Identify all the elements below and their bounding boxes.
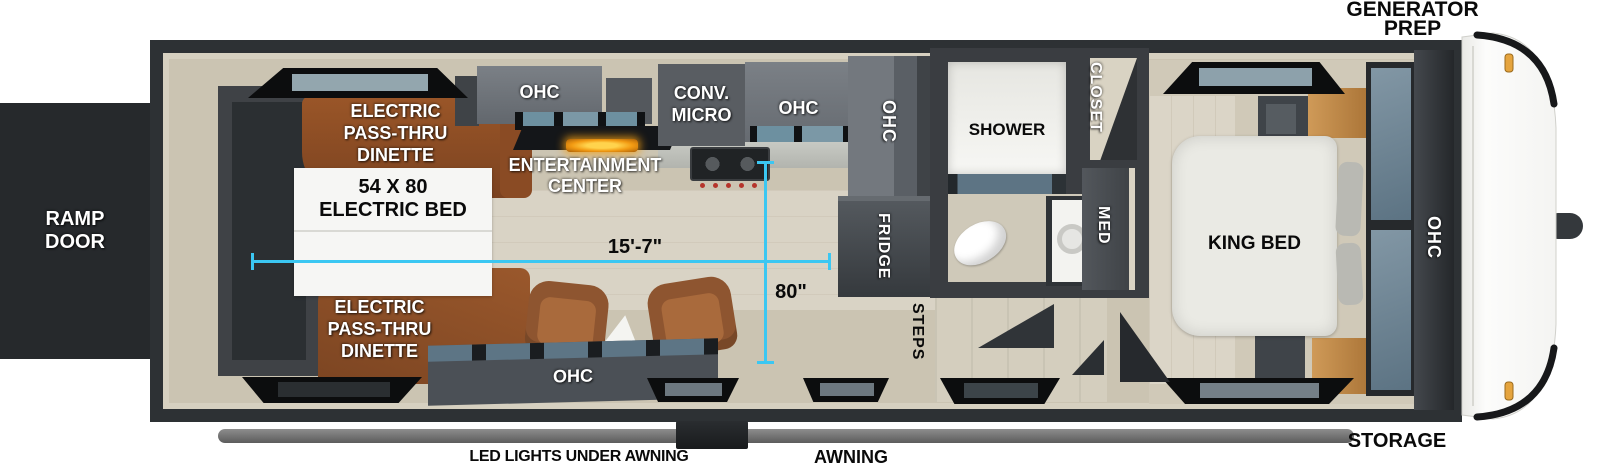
bedroom-cabinet-bottom-dark [1255, 336, 1305, 384]
vent-rear-bottom-icon [242, 377, 422, 403]
entry-step-icon [940, 378, 1060, 404]
dinette-top-line3: DINETTE [298, 144, 493, 166]
front-cap-shell [1462, 33, 1556, 419]
led-lights-label: LED LIGHTS UNDER AWNING [449, 448, 709, 466]
dinette-bottom-line2: PASS-THRU [282, 318, 477, 340]
entertainment-line1: ENTERTAINMENT [490, 155, 680, 176]
dinette-bottom-line1: ELECTRIC [282, 296, 477, 318]
marker-light-bottom-icon [1505, 382, 1513, 400]
cabinet-door [1266, 104, 1296, 134]
conv-micro-line2: MICRO [658, 104, 745, 126]
dinette-bottom-label: ELECTRIC PASS-THRU DINETTE [282, 296, 477, 362]
conv-micro-label: CONV. MICRO [658, 64, 745, 126]
dinette-top-line1: ELECTRIC [298, 100, 493, 122]
width-dimension-line [764, 163, 767, 364]
marker-light-top-icon [1505, 54, 1513, 72]
electric-bed-line2: ELECTRIC BED [294, 199, 492, 222]
shower-label: SHOWER [948, 120, 1066, 140]
ramp-door-line1: RAMP [0, 208, 150, 231]
skylight-bedroom-icon [1163, 62, 1345, 94]
med-label: MED [1094, 206, 1112, 245]
fridge-label: FRIDGE [874, 213, 892, 279]
length-dimension-line [253, 260, 831, 263]
vent-glass [665, 383, 722, 396]
skylight-front-living-icon [248, 68, 468, 98]
ramp-door-line2: DOOR [0, 231, 150, 254]
conv-micro-line1: CONV. [658, 82, 745, 104]
fridge: FRIDGE [838, 196, 933, 297]
width-dimension-label: 80" [766, 281, 816, 304]
vent-glass [964, 383, 1038, 398]
electric-bed-line1: 54 X 80 [294, 176, 492, 199]
vent-bedroom-bottom-icon [1162, 378, 1354, 404]
glass-door-band-2 [750, 126, 850, 142]
generator-prep-label: GENERATOR PREP [1325, 0, 1500, 38]
skylight-glass [292, 74, 428, 91]
conv-micro-cabinet: CONV. MICRO [658, 64, 745, 146]
fireplace-icon [566, 139, 638, 152]
bedroom-ohc-label: OHC [1423, 216, 1444, 259]
ohc-tall-label: OHC [878, 100, 899, 143]
bedroom-wardrobe [1366, 62, 1416, 396]
length-tick-right [828, 253, 831, 270]
awning-bar [218, 429, 1354, 443]
dinette-bottom-line3: DINETTE [282, 340, 477, 362]
generator-prep-line2: PREP [1325, 19, 1500, 38]
ohc-right-label: OHC [745, 98, 852, 119]
electric-bed-platform: 54 X 80 ELECTRIC BED [294, 168, 492, 296]
vent-glass [278, 382, 390, 397]
cooktop-icon [690, 147, 770, 181]
length-tick-left [251, 253, 254, 270]
shower-stall [948, 62, 1066, 174]
bedroom-ohc-cabinet: OHC [1414, 50, 1454, 410]
awning-label: AWNING [791, 447, 911, 467]
entertainment-center-label: ENTERTAINMENT CENTER [490, 155, 680, 197]
bathroom-vanity [948, 174, 1066, 194]
entertainment-line2: CENTER [490, 176, 680, 197]
bed-seam [294, 230, 492, 232]
wardrobe-mirror-bottom [1371, 230, 1411, 390]
floorplan-canvas: GENERATOR PREP STORAGE AWNING LED LIGHTS… [0, 0, 1600, 467]
length-dimension-label: 15'-7" [585, 236, 685, 259]
ohc-left-label: OHC [477, 82, 602, 103]
pillow-bottom [1335, 242, 1363, 305]
width-tick-bottom [757, 361, 774, 364]
dinette-top-line2: PASS-THRU [298, 122, 493, 144]
cooktop-knobs [700, 183, 770, 188]
vent-glass [1200, 383, 1319, 398]
electric-bed-label: 54 X 80 ELECTRIC BED [294, 168, 492, 222]
vent-mid-bottom-right-icon [803, 378, 889, 402]
steps-label: STEPS [908, 303, 926, 360]
vent-mid-bottom-left-icon [647, 378, 739, 402]
awning-bracket [676, 421, 748, 449]
king-bed-label: KING BED [1172, 233, 1337, 255]
wardrobe-mirror-top [1371, 68, 1411, 220]
front-cap [1449, 30, 1589, 422]
ramp-door-label: RAMP DOOR [0, 208, 150, 254]
ramp-door: RAMP DOOR [0, 103, 150, 359]
ohc-tall-cabinet: OHC [848, 56, 932, 197]
pillow-top [1335, 161, 1364, 236]
vent-glass [820, 383, 873, 396]
bedroom-nightstand-top [1308, 88, 1370, 138]
skylight-glass [1199, 68, 1312, 86]
dinette-top-label: ELECTRIC PASS-THRU DINETTE [298, 100, 493, 166]
width-tick-top [757, 161, 774, 164]
closet-label: CLOSET [1086, 62, 1104, 133]
storage-label: STORAGE [1327, 430, 1467, 453]
